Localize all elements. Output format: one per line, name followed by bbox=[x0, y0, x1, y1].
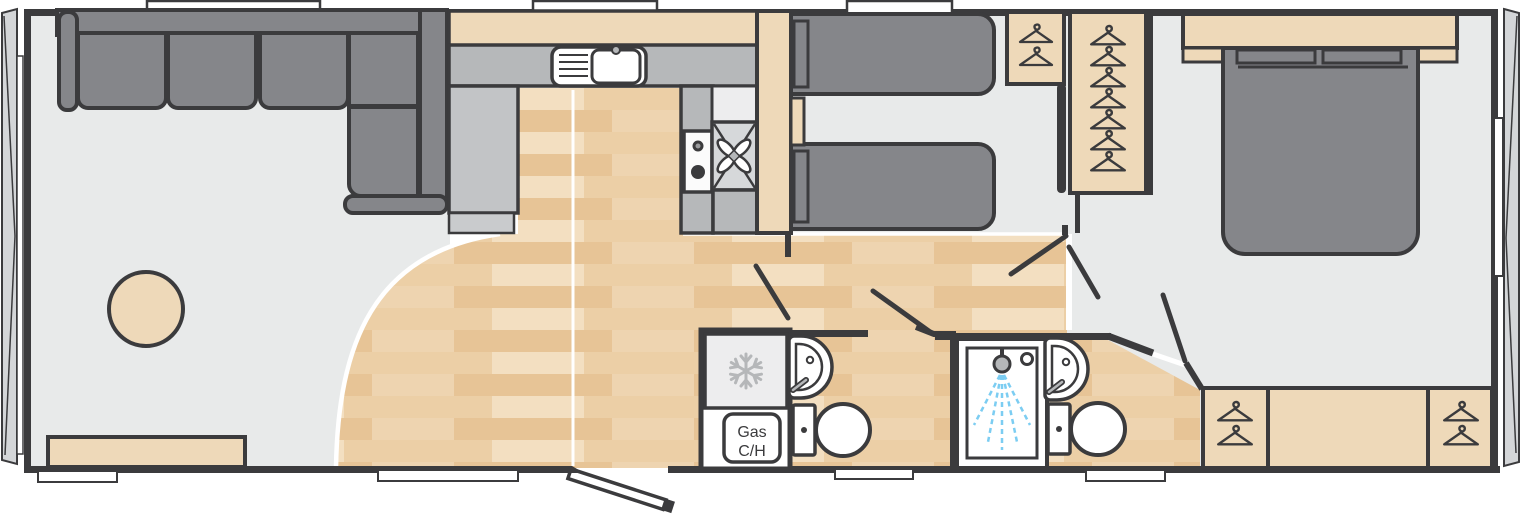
coffee-table bbox=[109, 272, 183, 346]
sofa-arm-bottom bbox=[345, 196, 447, 213]
gas-label-line1: Gas bbox=[737, 424, 766, 441]
window-wc-bottom bbox=[835, 469, 913, 479]
front-window-left bbox=[2, 9, 23, 464]
kitchen-sink bbox=[552, 46, 646, 86]
wall-stub-wardrobe bbox=[1075, 193, 1080, 233]
overhead-shelf bbox=[1183, 14, 1457, 48]
shower-head-icon bbox=[994, 356, 1010, 372]
shower-enclosure bbox=[957, 339, 1047, 468]
twin-wardrobe-small bbox=[1007, 12, 1064, 84]
bedside-shelf bbox=[791, 98, 804, 145]
kitchen-worktop bbox=[449, 11, 758, 46]
tv-sideboard bbox=[48, 437, 245, 467]
master-wardrobe-left bbox=[1203, 388, 1268, 468]
bedside-ledge-left bbox=[1183, 48, 1223, 62]
master-wardrobe-right bbox=[1428, 388, 1492, 468]
window-dining-bottom bbox=[378, 470, 518, 481]
sofa-cushion bbox=[168, 33, 256, 108]
wall-stub-cupboard bbox=[785, 233, 791, 257]
shower-control-icon bbox=[1022, 354, 1033, 365]
shower-room-toilet bbox=[1048, 403, 1125, 455]
entrance-door bbox=[568, 468, 675, 513]
sofa-cushion bbox=[260, 33, 348, 108]
sofa-arm-left bbox=[59, 12, 77, 110]
hob bbox=[684, 131, 712, 192]
sofa-cushion bbox=[78, 33, 166, 108]
floor-plan-canvas: Gas C/H bbox=[0, 0, 1521, 517]
sofa-back-right bbox=[420, 10, 447, 202]
hob-burner-icon bbox=[694, 142, 702, 150]
sink-tap-icon bbox=[612, 46, 620, 54]
wall-stub-twin-door bbox=[1062, 225, 1068, 235]
tall-cupboard bbox=[757, 11, 791, 233]
wall-twin-wardrobe-return bbox=[1057, 84, 1066, 193]
sofa-side-cushion bbox=[349, 107, 418, 196]
sofa-corner-cushion bbox=[349, 33, 418, 106]
twin-bed-1 bbox=[791, 14, 994, 94]
utility-cupboard: Gas C/H bbox=[701, 330, 790, 469]
gas-central-heating: Gas C/H bbox=[724, 414, 780, 462]
wall-left bbox=[24, 9, 31, 473]
bedroom-side-window bbox=[1494, 118, 1503, 276]
kitchen-unit-return bbox=[713, 190, 757, 233]
twin-wardrobe-tall bbox=[1070, 12, 1146, 193]
kitchen-unit-foot bbox=[449, 213, 514, 233]
kitchen-unit-left bbox=[449, 86, 518, 213]
dresser bbox=[1268, 388, 1428, 468]
wc-toilet bbox=[793, 404, 870, 456]
floor-plan: Gas C/H bbox=[0, 0, 1521, 517]
oven-fan bbox=[712, 122, 757, 190]
bedside-ledge-right bbox=[1418, 48, 1457, 62]
gas-label-line2: C/H bbox=[738, 443, 766, 460]
window-lounge-bottom bbox=[38, 471, 117, 482]
hob-burner-icon bbox=[691, 165, 705, 179]
window-shower-bottom bbox=[1086, 470, 1165, 481]
double-bed bbox=[1223, 48, 1418, 254]
twin-bed-2 bbox=[791, 144, 994, 229]
kitchen-cupboard bbox=[712, 86, 757, 123]
